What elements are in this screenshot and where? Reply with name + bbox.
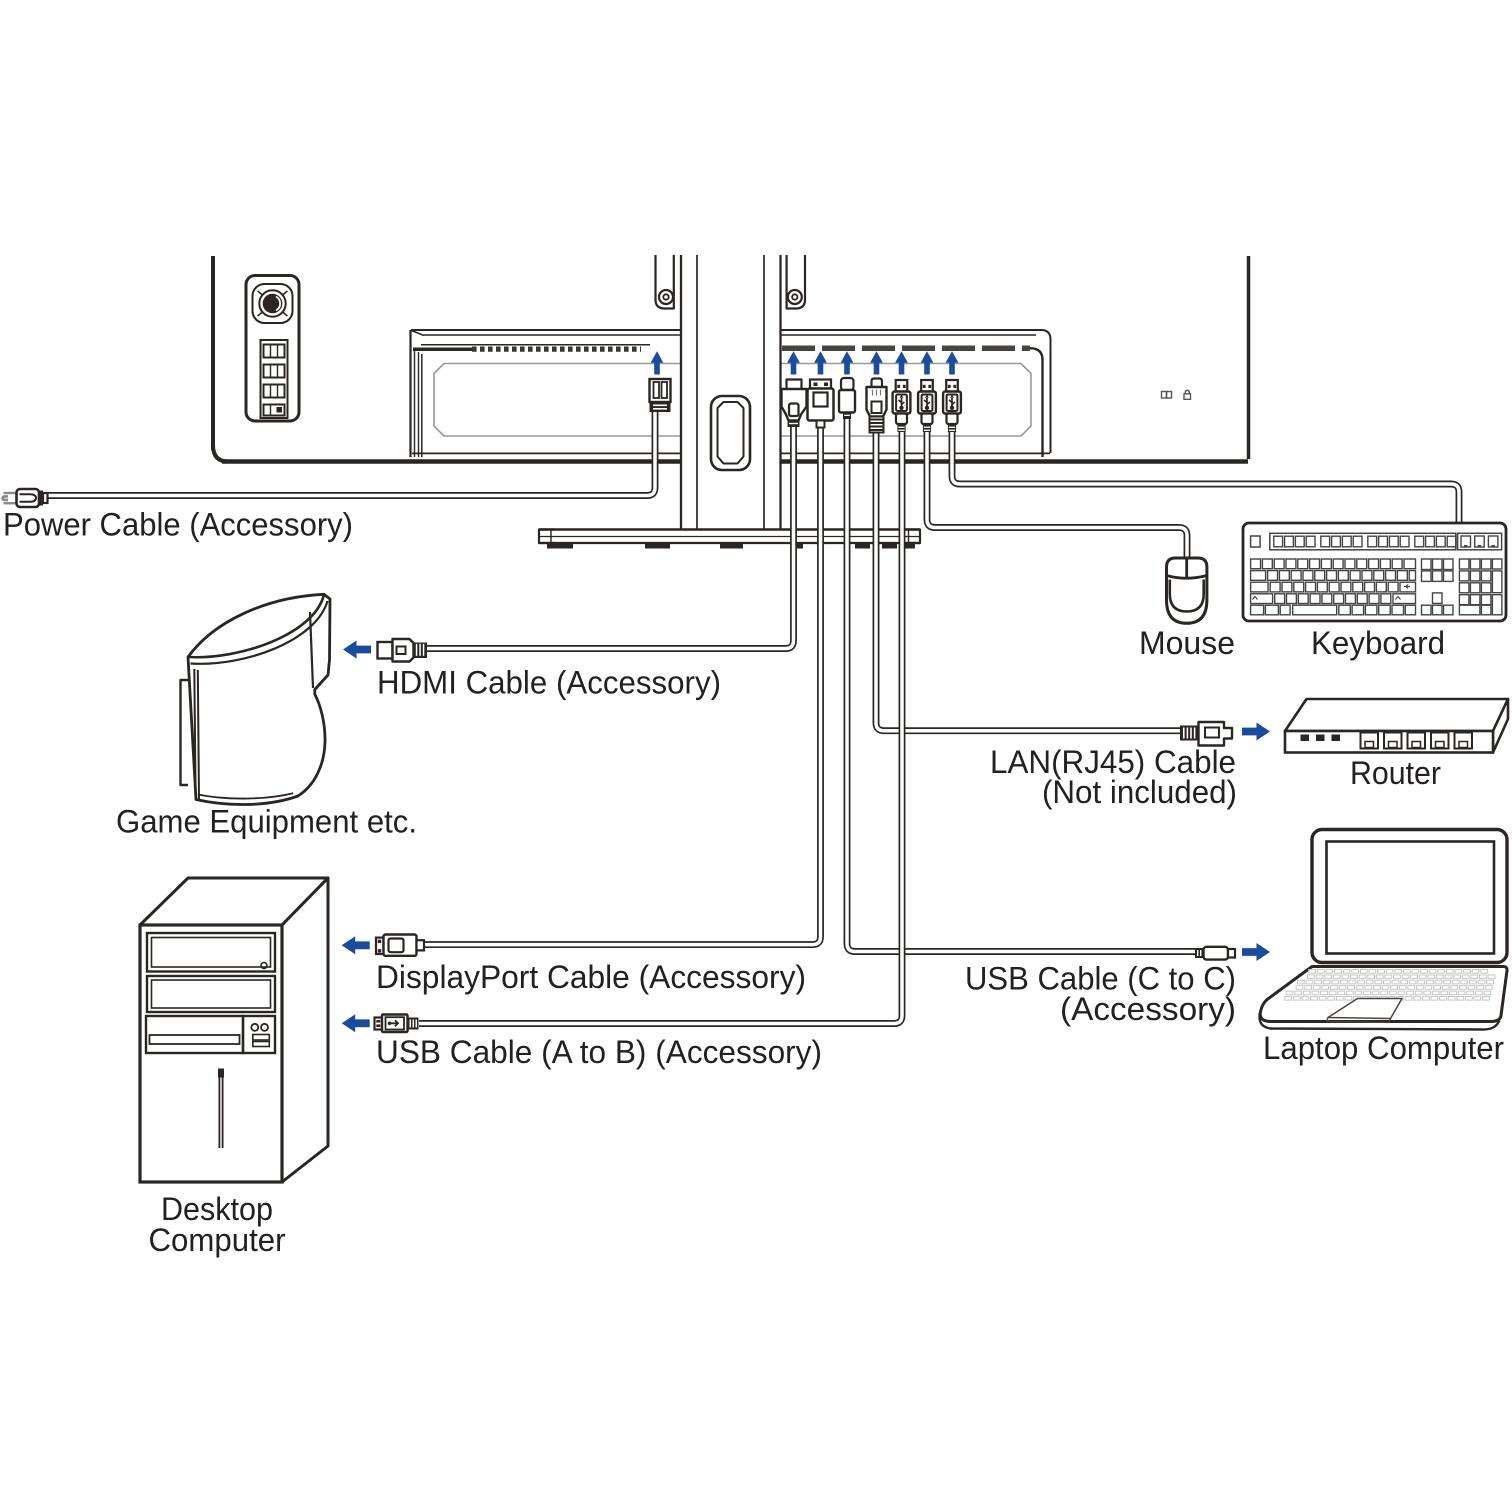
svg-text:Keyboard: Keyboard: [1311, 625, 1445, 661]
svg-text:Router: Router: [1350, 755, 1441, 791]
svg-text:USB Cable (A to B) (Accessory): USB Cable (A to B) (Accessory): [376, 1034, 822, 1070]
svg-text:Game Equipment etc.: Game Equipment etc.: [116, 804, 417, 840]
svg-text:Power Cable (Accessory): Power Cable (Accessory): [3, 507, 353, 543]
svg-text:DisplayPort Cable (Accessory): DisplayPort Cable (Accessory): [376, 959, 806, 995]
svg-text:(Not included): (Not included): [1042, 774, 1237, 810]
svg-text:Mouse: Mouse: [1139, 625, 1235, 661]
svg-text:HDMI Cable (Accessory): HDMI Cable (Accessory): [377, 665, 721, 701]
svg-text:Laptop Computer: Laptop Computer: [1263, 1030, 1504, 1066]
svg-text:Computer: Computer: [149, 1222, 286, 1258]
svg-text:(Accessory): (Accessory): [1060, 991, 1236, 1027]
